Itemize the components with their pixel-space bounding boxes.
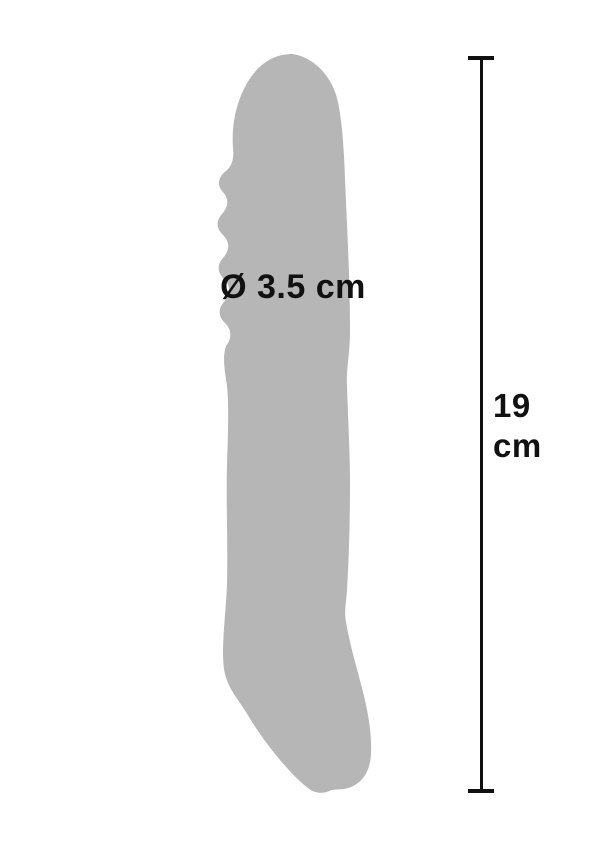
measure-line	[480, 56, 483, 793]
product-silhouette-shape	[218, 54, 372, 793]
diameter-label: Ø 3.5 cm	[173, 269, 413, 305]
product-dimension-diagram: Ø 3.5 cm 19 cm	[0, 0, 600, 850]
measure-cap-bottom	[468, 789, 494, 793]
length-label: 19 cm	[493, 386, 542, 466]
length-unit: cm	[493, 426, 542, 466]
length-value: 19	[493, 386, 542, 426]
length-measure	[468, 56, 494, 793]
